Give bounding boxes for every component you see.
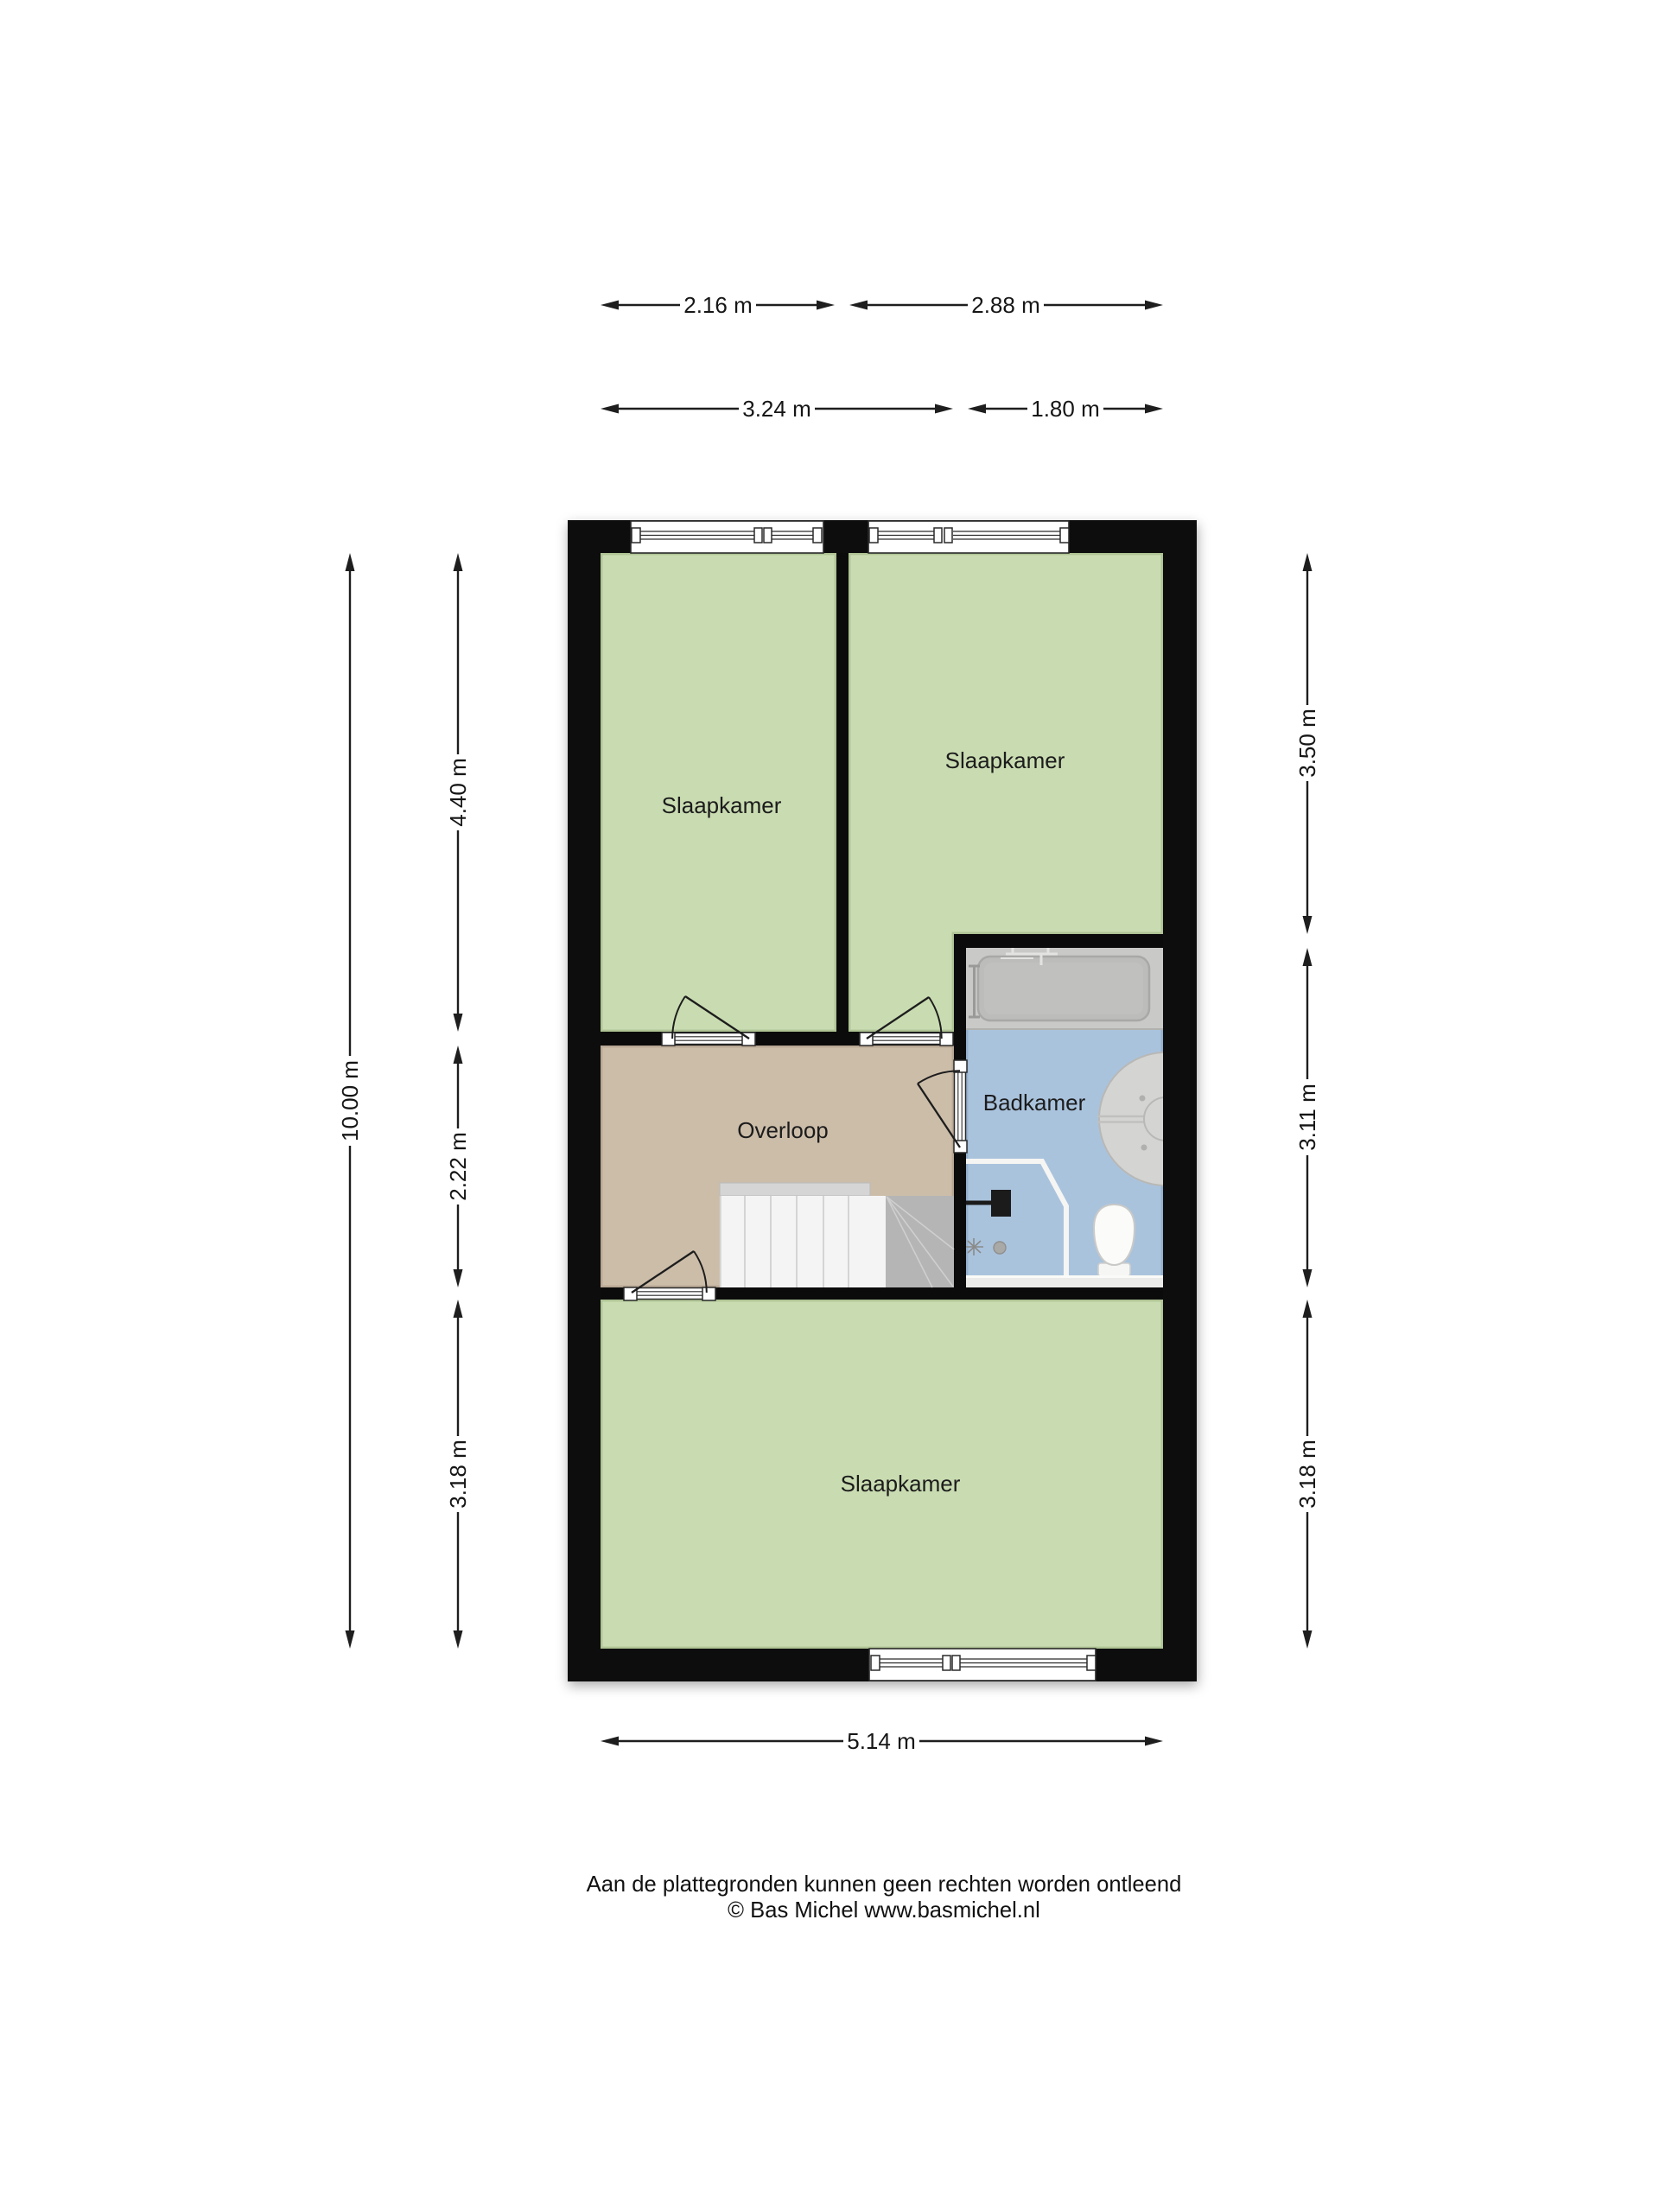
svg-text:3.24 m: 3.24 m xyxy=(742,396,811,422)
svg-text:3.11 m: 3.11 m xyxy=(1294,1084,1320,1151)
svg-text:Slaapkamer: Slaapkamer xyxy=(945,747,1065,773)
svg-text:1.80 m: 1.80 m xyxy=(1031,396,1100,422)
svg-text:10.00 m: 10.00 m xyxy=(337,1060,363,1141)
svg-text:© Bas Michel www.basmichel.nl: © Bas Michel www.basmichel.nl xyxy=(728,1898,1040,1923)
svg-text:2.88 m: 2.88 m xyxy=(971,292,1040,318)
svg-text:Aan de plattegronden kunnen ge: Aan de plattegronden kunnen geen rechten… xyxy=(587,1872,1182,1897)
svg-text:Overloop: Overloop xyxy=(737,1117,829,1143)
svg-text:3.18 m: 3.18 m xyxy=(445,1440,471,1509)
svg-text:Slaapkamer: Slaapkamer xyxy=(662,792,782,818)
svg-text:3.18 m: 3.18 m xyxy=(1294,1440,1320,1509)
svg-text:Slaapkamer: Slaapkamer xyxy=(841,1471,961,1497)
svg-text:5.14 m: 5.14 m xyxy=(847,1728,916,1754)
svg-text:2.16 m: 2.16 m xyxy=(683,292,753,318)
svg-text:2.22 m: 2.22 m xyxy=(445,1132,471,1201)
svg-text:4.40 m: 4.40 m xyxy=(445,758,471,827)
svg-text:Badkamer: Badkamer xyxy=(983,1090,1086,1116)
svg-text:3.50 m: 3.50 m xyxy=(1294,709,1320,778)
